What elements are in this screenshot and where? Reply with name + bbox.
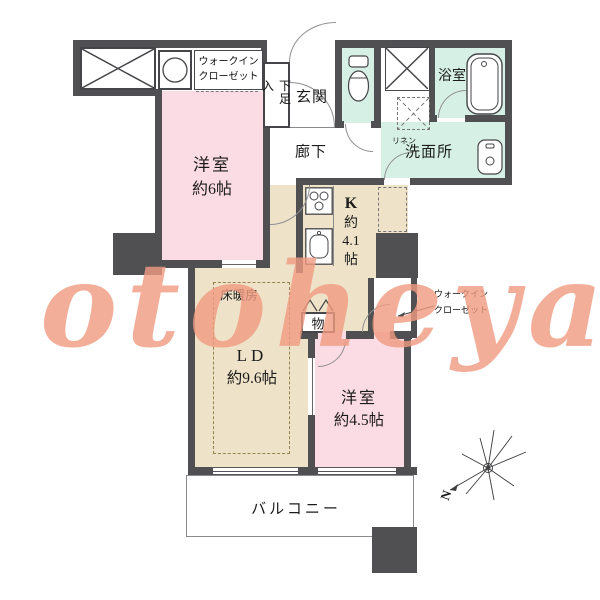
walk-in-closet-top-box: ウォークイン クローゼット [194,50,263,90]
wall-bottom-c [396,467,417,475]
shoe-cabinet-label: 下足入 [260,80,294,111]
balcony-pillar [372,527,417,573]
wall-entrance-toilet [335,40,342,128]
wall-washroom-bottom [410,178,512,185]
pillar-right [376,233,418,278]
ld-br45-sliding-door [308,358,315,415]
floor-heating-label: 床暖房 [220,285,258,304]
kitchen-size-line3: 帖 [342,252,360,271]
kitchen-name: K [342,193,360,215]
corridor-label: 廊下 [295,141,327,162]
kitchen-size-line1: 約 [342,214,360,233]
wall-bottom-a [188,467,213,475]
balcony-window-br45 [318,467,396,475]
storage-box: 物 [301,312,335,333]
floorplan-image: ウォークイン クローゼット 下足入 [0,0,600,600]
wall-bottom-b [298,467,318,475]
bedroom6-sliding-door [222,260,256,268]
toilet-icon [346,54,371,112]
ld-name: LD [237,346,268,366]
bedroom-45-size: 約4.5帖 [334,408,384,430]
wall-br45-top-b [346,331,374,339]
kitchen-size-line2: 4.1 [342,233,360,252]
walk-in-closet-side-label-line1: ウォークイン [434,286,488,302]
wall-toilet-right [374,40,381,128]
bedroom-6-size: 約6帖 [192,175,232,199]
washing-machine-icon [158,50,192,90]
ld-size: 約9.6帖 [227,366,277,388]
bedroom-6-name: 洋室 [193,151,231,176]
refrigerator-space [378,187,407,232]
bathtub-icon [466,53,503,115]
pipe-space-crossed-box-icon [385,47,430,91]
wall-toilet-bottom-a [335,121,344,128]
entrance-label: 玄関 [296,86,328,107]
kitchen-counter-edge [333,186,334,266]
wall-left-top [73,40,80,96]
wall-bath-divider-a [429,115,437,122]
walk-in-closet-top-label-line2: クローゼット [199,70,259,85]
wall-ld-br45-divider-b [308,415,315,475]
bath-label: 浴室 [438,65,466,85]
wic-opening-dashed [196,91,258,92]
walk-in-closet-top-label-line1: ウォークイン [199,56,259,71]
pillar-left [113,233,162,275]
shoe-cabinet-box: 下足入 [263,62,290,128]
balcony-label: バルコニー [251,498,341,519]
washbasin-icon [477,139,503,175]
walk-in-closet-side-label-line2: クローゼット [434,302,488,318]
entrance-door-arc [289,22,336,62]
balcony-window-ld [213,467,298,475]
compass-icon: N [436,424,540,512]
toilet-door-arc [345,124,373,152]
wall-ld-left [188,262,195,475]
wall-ld-br45-divider-a [308,339,315,358]
wall-closet-bottom [73,89,162,96]
storage-label: 物 [311,313,324,332]
linen-label: リネン [392,136,416,147]
bedroom-45-name: 洋室 [341,384,377,408]
crossed-box-icon [80,47,156,90]
wic-pointer-arrow [390,300,436,322]
bifold-door-icon [301,298,335,312]
linen-closet-icon [397,97,430,130]
wall-corridor-bottom [302,178,384,185]
wall-bath-divider-b [465,115,512,122]
kitchen-sink-icon [305,228,333,265]
wall-br45-right [404,331,411,475]
x-cross-icon [82,49,154,88]
wall-right [505,40,512,185]
